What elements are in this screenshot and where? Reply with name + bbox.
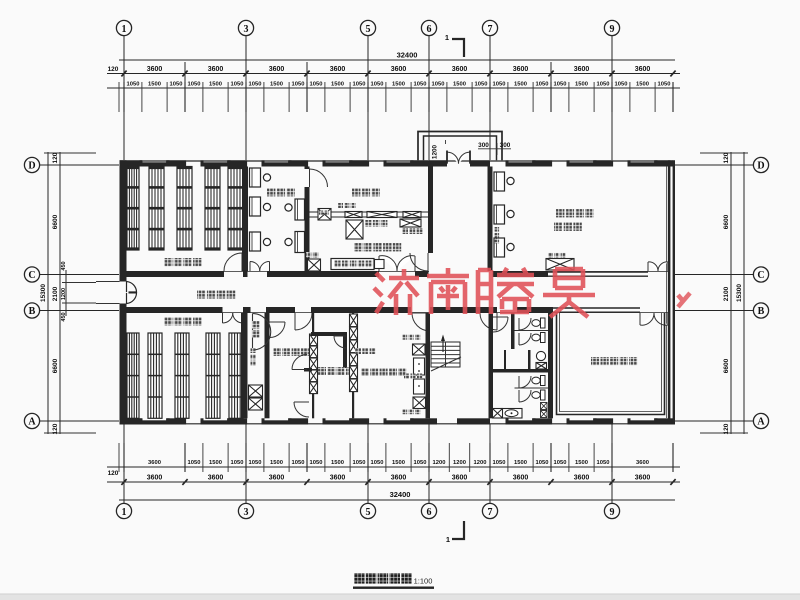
svg-text:120: 120 xyxy=(108,470,119,477)
svg-text:1050: 1050 xyxy=(310,460,323,466)
svg-text:B: B xyxy=(758,306,765,317)
svg-text:A: A xyxy=(757,417,765,428)
svg-text:1050: 1050 xyxy=(414,82,427,88)
svg-text:32400: 32400 xyxy=(390,490,411,499)
svg-text:3600: 3600 xyxy=(391,66,407,73)
svg-text:6600: 6600 xyxy=(723,358,730,373)
svg-text:3600: 3600 xyxy=(391,475,407,482)
svg-text:7: 7 xyxy=(488,24,493,35)
svg-text:1050: 1050 xyxy=(292,82,305,88)
svg-text:3600: 3600 xyxy=(452,475,468,482)
svg-text:3600: 3600 xyxy=(269,475,285,482)
svg-text:3600: 3600 xyxy=(269,66,285,73)
svg-text:1050: 1050 xyxy=(292,460,305,466)
svg-text:2100: 2100 xyxy=(723,286,730,301)
svg-text:1200: 1200 xyxy=(432,144,439,159)
svg-text:1200: 1200 xyxy=(474,460,487,466)
svg-text:1050: 1050 xyxy=(536,82,549,88)
svg-text:1050: 1050 xyxy=(432,82,445,88)
svg-text:1: 1 xyxy=(445,33,449,42)
svg-text:9: 9 xyxy=(610,507,615,518)
svg-text:1500: 1500 xyxy=(636,82,649,88)
svg-text:1050: 1050 xyxy=(536,460,549,466)
svg-text:1500: 1500 xyxy=(209,82,222,88)
svg-text:1200: 1200 xyxy=(433,460,446,466)
svg-text:120: 120 xyxy=(723,152,730,163)
svg-text:1050: 1050 xyxy=(615,82,628,88)
svg-text:1500: 1500 xyxy=(392,460,405,466)
svg-text:1500: 1500 xyxy=(270,460,283,466)
svg-text:B: B xyxy=(29,306,36,317)
svg-text:6: 6 xyxy=(427,507,432,518)
svg-text:1050: 1050 xyxy=(231,460,244,466)
svg-text:1500: 1500 xyxy=(575,460,588,466)
svg-text:15300: 15300 xyxy=(40,284,47,302)
svg-text:32400: 32400 xyxy=(397,51,418,60)
svg-text:1050: 1050 xyxy=(231,82,244,88)
svg-text:6: 6 xyxy=(427,24,432,35)
svg-text:1050: 1050 xyxy=(554,82,567,88)
svg-text:450: 450 xyxy=(61,261,67,270)
svg-text:1050: 1050 xyxy=(658,82,671,88)
svg-text:5: 5 xyxy=(366,24,371,35)
svg-text:6600: 6600 xyxy=(723,214,730,229)
svg-text:3: 3 xyxy=(244,507,249,518)
svg-text:1500: 1500 xyxy=(575,82,588,88)
svg-text:5: 5 xyxy=(366,507,371,518)
svg-text:1050: 1050 xyxy=(310,82,323,88)
svg-text:6600: 6600 xyxy=(52,358,59,373)
svg-text:3600: 3600 xyxy=(635,475,651,482)
svg-text:6600: 6600 xyxy=(52,214,59,229)
svg-text:1: 1 xyxy=(122,24,127,35)
svg-text:C: C xyxy=(757,270,764,281)
svg-text:1050: 1050 xyxy=(188,460,201,466)
svg-text:1050: 1050 xyxy=(554,460,567,466)
svg-text:1050: 1050 xyxy=(475,82,488,88)
svg-text:1500: 1500 xyxy=(514,82,527,88)
svg-text:450: 450 xyxy=(61,312,67,321)
svg-text:300: 300 xyxy=(478,142,489,149)
svg-text:120: 120 xyxy=(52,152,59,163)
svg-text:A: A xyxy=(28,417,36,428)
svg-text:1050: 1050 xyxy=(597,460,610,466)
svg-text:1050: 1050 xyxy=(127,82,140,88)
svg-text:3600: 3600 xyxy=(147,66,163,73)
svg-text:3600: 3600 xyxy=(513,66,529,73)
svg-text:3600: 3600 xyxy=(148,460,161,466)
svg-text:1200: 1200 xyxy=(453,460,466,466)
svg-text:1: 1 xyxy=(122,507,127,518)
svg-text:1050: 1050 xyxy=(414,460,427,466)
svg-text:120: 120 xyxy=(52,423,59,434)
svg-text:1050: 1050 xyxy=(371,82,384,88)
svg-text:3600: 3600 xyxy=(574,475,590,482)
svg-text:300: 300 xyxy=(500,142,511,149)
svg-text:1500: 1500 xyxy=(209,460,222,466)
svg-text:1050: 1050 xyxy=(170,82,183,88)
svg-text:3600: 3600 xyxy=(208,66,224,73)
svg-text:1200: 1200 xyxy=(61,288,67,300)
svg-text:1500: 1500 xyxy=(331,460,344,466)
svg-text:3600: 3600 xyxy=(635,66,651,73)
svg-text:7: 7 xyxy=(488,507,493,518)
svg-text:3600: 3600 xyxy=(636,460,649,466)
svg-text:3600: 3600 xyxy=(208,475,224,482)
svg-text:1050: 1050 xyxy=(493,460,506,466)
svg-text:1050: 1050 xyxy=(249,460,262,466)
svg-text:D: D xyxy=(757,161,764,172)
svg-text:D: D xyxy=(28,161,35,172)
svg-text:1050: 1050 xyxy=(188,82,201,88)
svg-text:3600: 3600 xyxy=(452,66,468,73)
svg-text:1500: 1500 xyxy=(148,82,161,88)
svg-text:1500: 1500 xyxy=(270,82,283,88)
svg-text:1:100: 1:100 xyxy=(414,577,433,586)
svg-text:120: 120 xyxy=(723,423,730,434)
svg-text:1050: 1050 xyxy=(371,460,384,466)
svg-text:3: 3 xyxy=(244,24,249,35)
svg-text:1500: 1500 xyxy=(331,82,344,88)
svg-text:1500: 1500 xyxy=(514,460,527,466)
svg-text:1050: 1050 xyxy=(353,460,366,466)
svg-text:1050: 1050 xyxy=(493,82,506,88)
svg-text:3600: 3600 xyxy=(513,475,529,482)
svg-text:1050: 1050 xyxy=(353,82,366,88)
svg-text:C: C xyxy=(28,270,35,281)
svg-text:120: 120 xyxy=(108,66,119,73)
svg-text:15300: 15300 xyxy=(736,284,743,302)
svg-text:1050: 1050 xyxy=(249,82,262,88)
svg-text:3600: 3600 xyxy=(147,475,163,482)
svg-text:3600: 3600 xyxy=(574,66,590,73)
svg-text:1500: 1500 xyxy=(392,82,405,88)
svg-text:3600: 3600 xyxy=(330,475,346,482)
svg-text:1: 1 xyxy=(446,535,450,544)
svg-text:9: 9 xyxy=(610,24,615,35)
svg-text:1050: 1050 xyxy=(597,82,610,88)
svg-text:1500: 1500 xyxy=(453,82,466,88)
svg-text:3600: 3600 xyxy=(330,66,346,73)
svg-text:2100: 2100 xyxy=(52,286,59,301)
